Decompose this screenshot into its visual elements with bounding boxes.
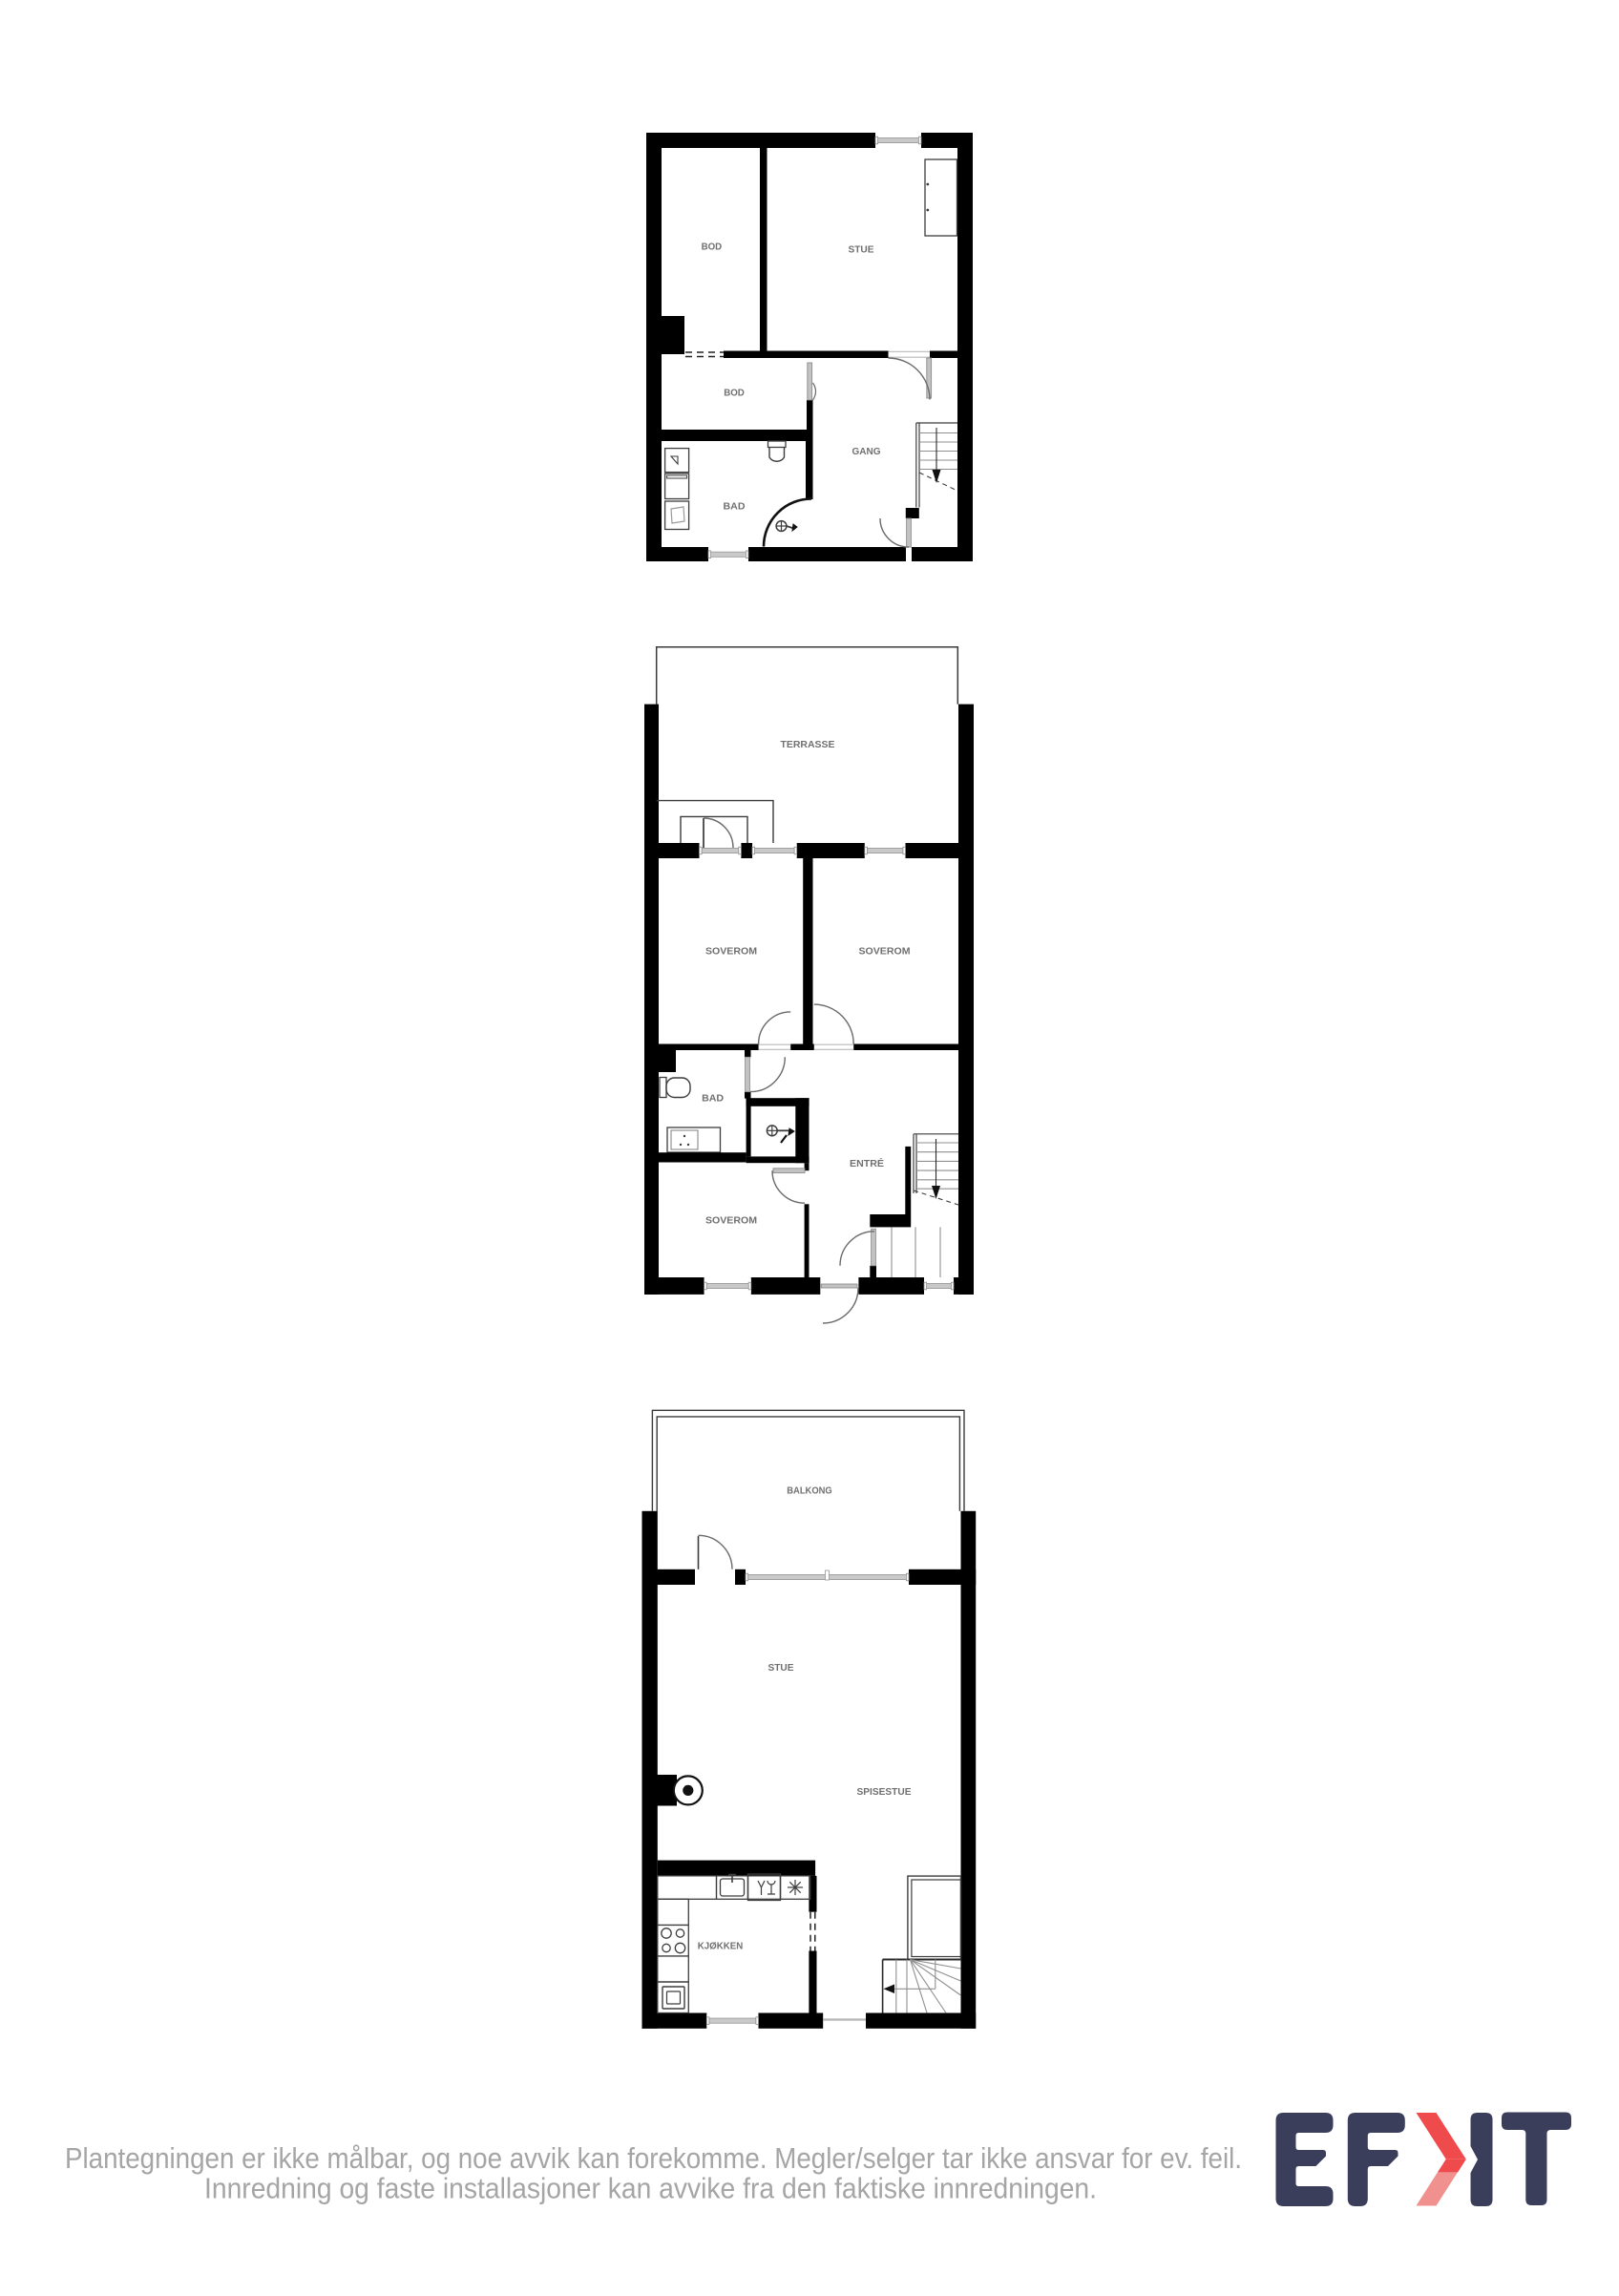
- svg-text:SPISESTUE: SPISESTUE: [857, 1786, 912, 1798]
- svg-text:GANG: GANG: [852, 446, 881, 457]
- svg-text:SOVEROM: SOVEROM: [705, 1215, 757, 1227]
- svg-text:BALKONG: BALKONG: [787, 1485, 832, 1497]
- svg-text:BOD: BOD: [702, 242, 723, 253]
- svg-text:SOVEROM: SOVEROM: [859, 946, 911, 958]
- svg-text:Innredning og faste installasj: Innredning og faste installasjoner kan a…: [204, 2173, 1097, 2205]
- svg-text:SOVEROM: SOVEROM: [705, 946, 757, 958]
- svg-text:STUE: STUE: [768, 1662, 794, 1674]
- svg-text:KJØKKEN: KJØKKEN: [698, 1941, 744, 1952]
- svg-text:BAD: BAD: [702, 1093, 724, 1105]
- svg-text:BOD: BOD: [724, 388, 745, 399]
- svg-text:STUE: STUE: [849, 244, 874, 256]
- svg-text:BAD: BAD: [724, 501, 746, 513]
- svg-text:TERRASSE: TERRASSE: [781, 739, 835, 750]
- svg-text:ENTRÉ: ENTRÉ: [850, 1157, 884, 1169]
- svg-text:Plantegningen er ikke målbar,: Plantegningen er ikke målbar, og noe avv…: [65, 2142, 1242, 2175]
